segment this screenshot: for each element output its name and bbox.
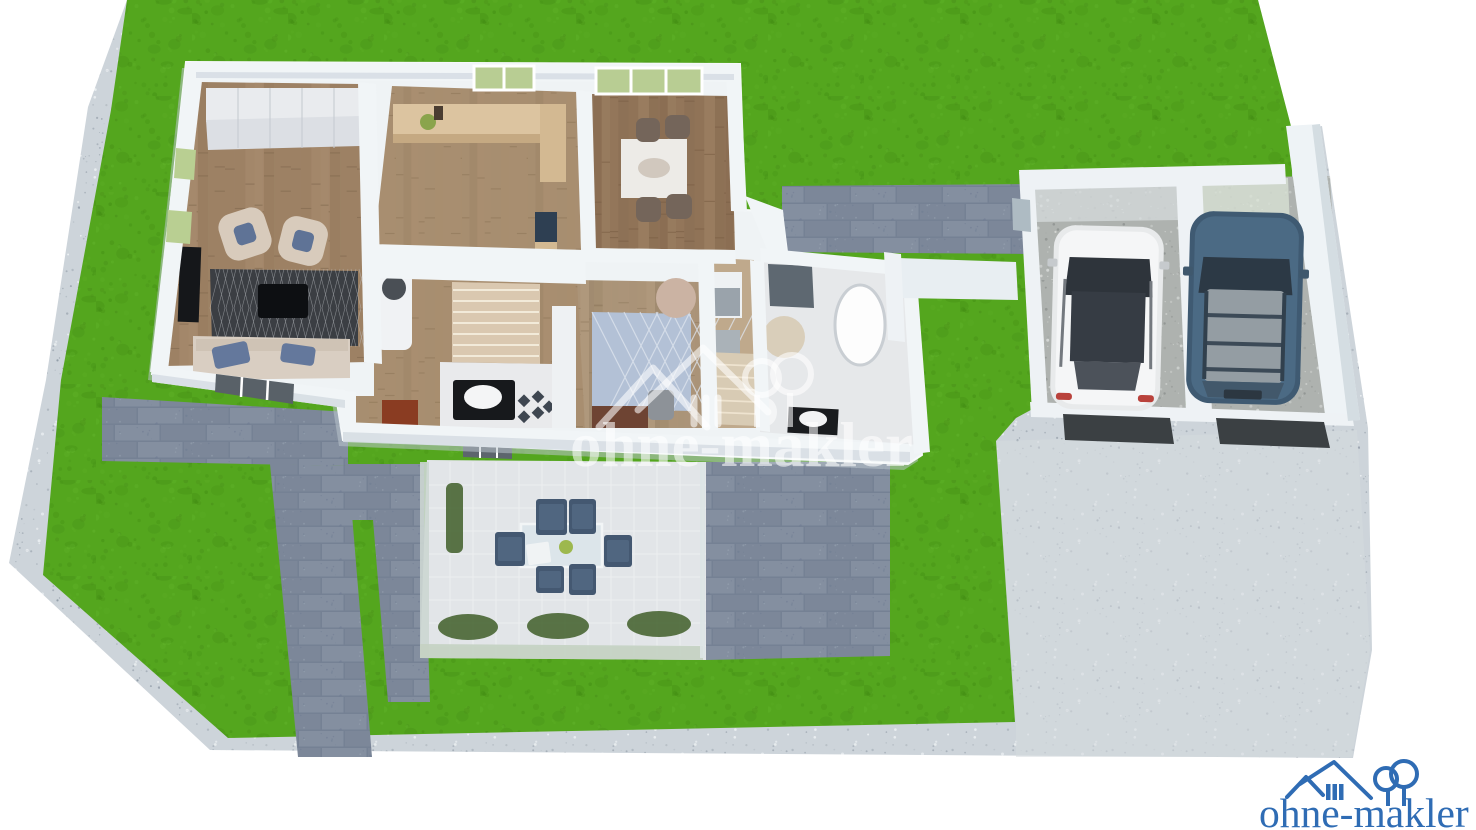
svg-text:ohne-makler: ohne-makler xyxy=(1259,790,1469,830)
svg-text:ohne-makler: ohne-makler xyxy=(570,410,913,480)
